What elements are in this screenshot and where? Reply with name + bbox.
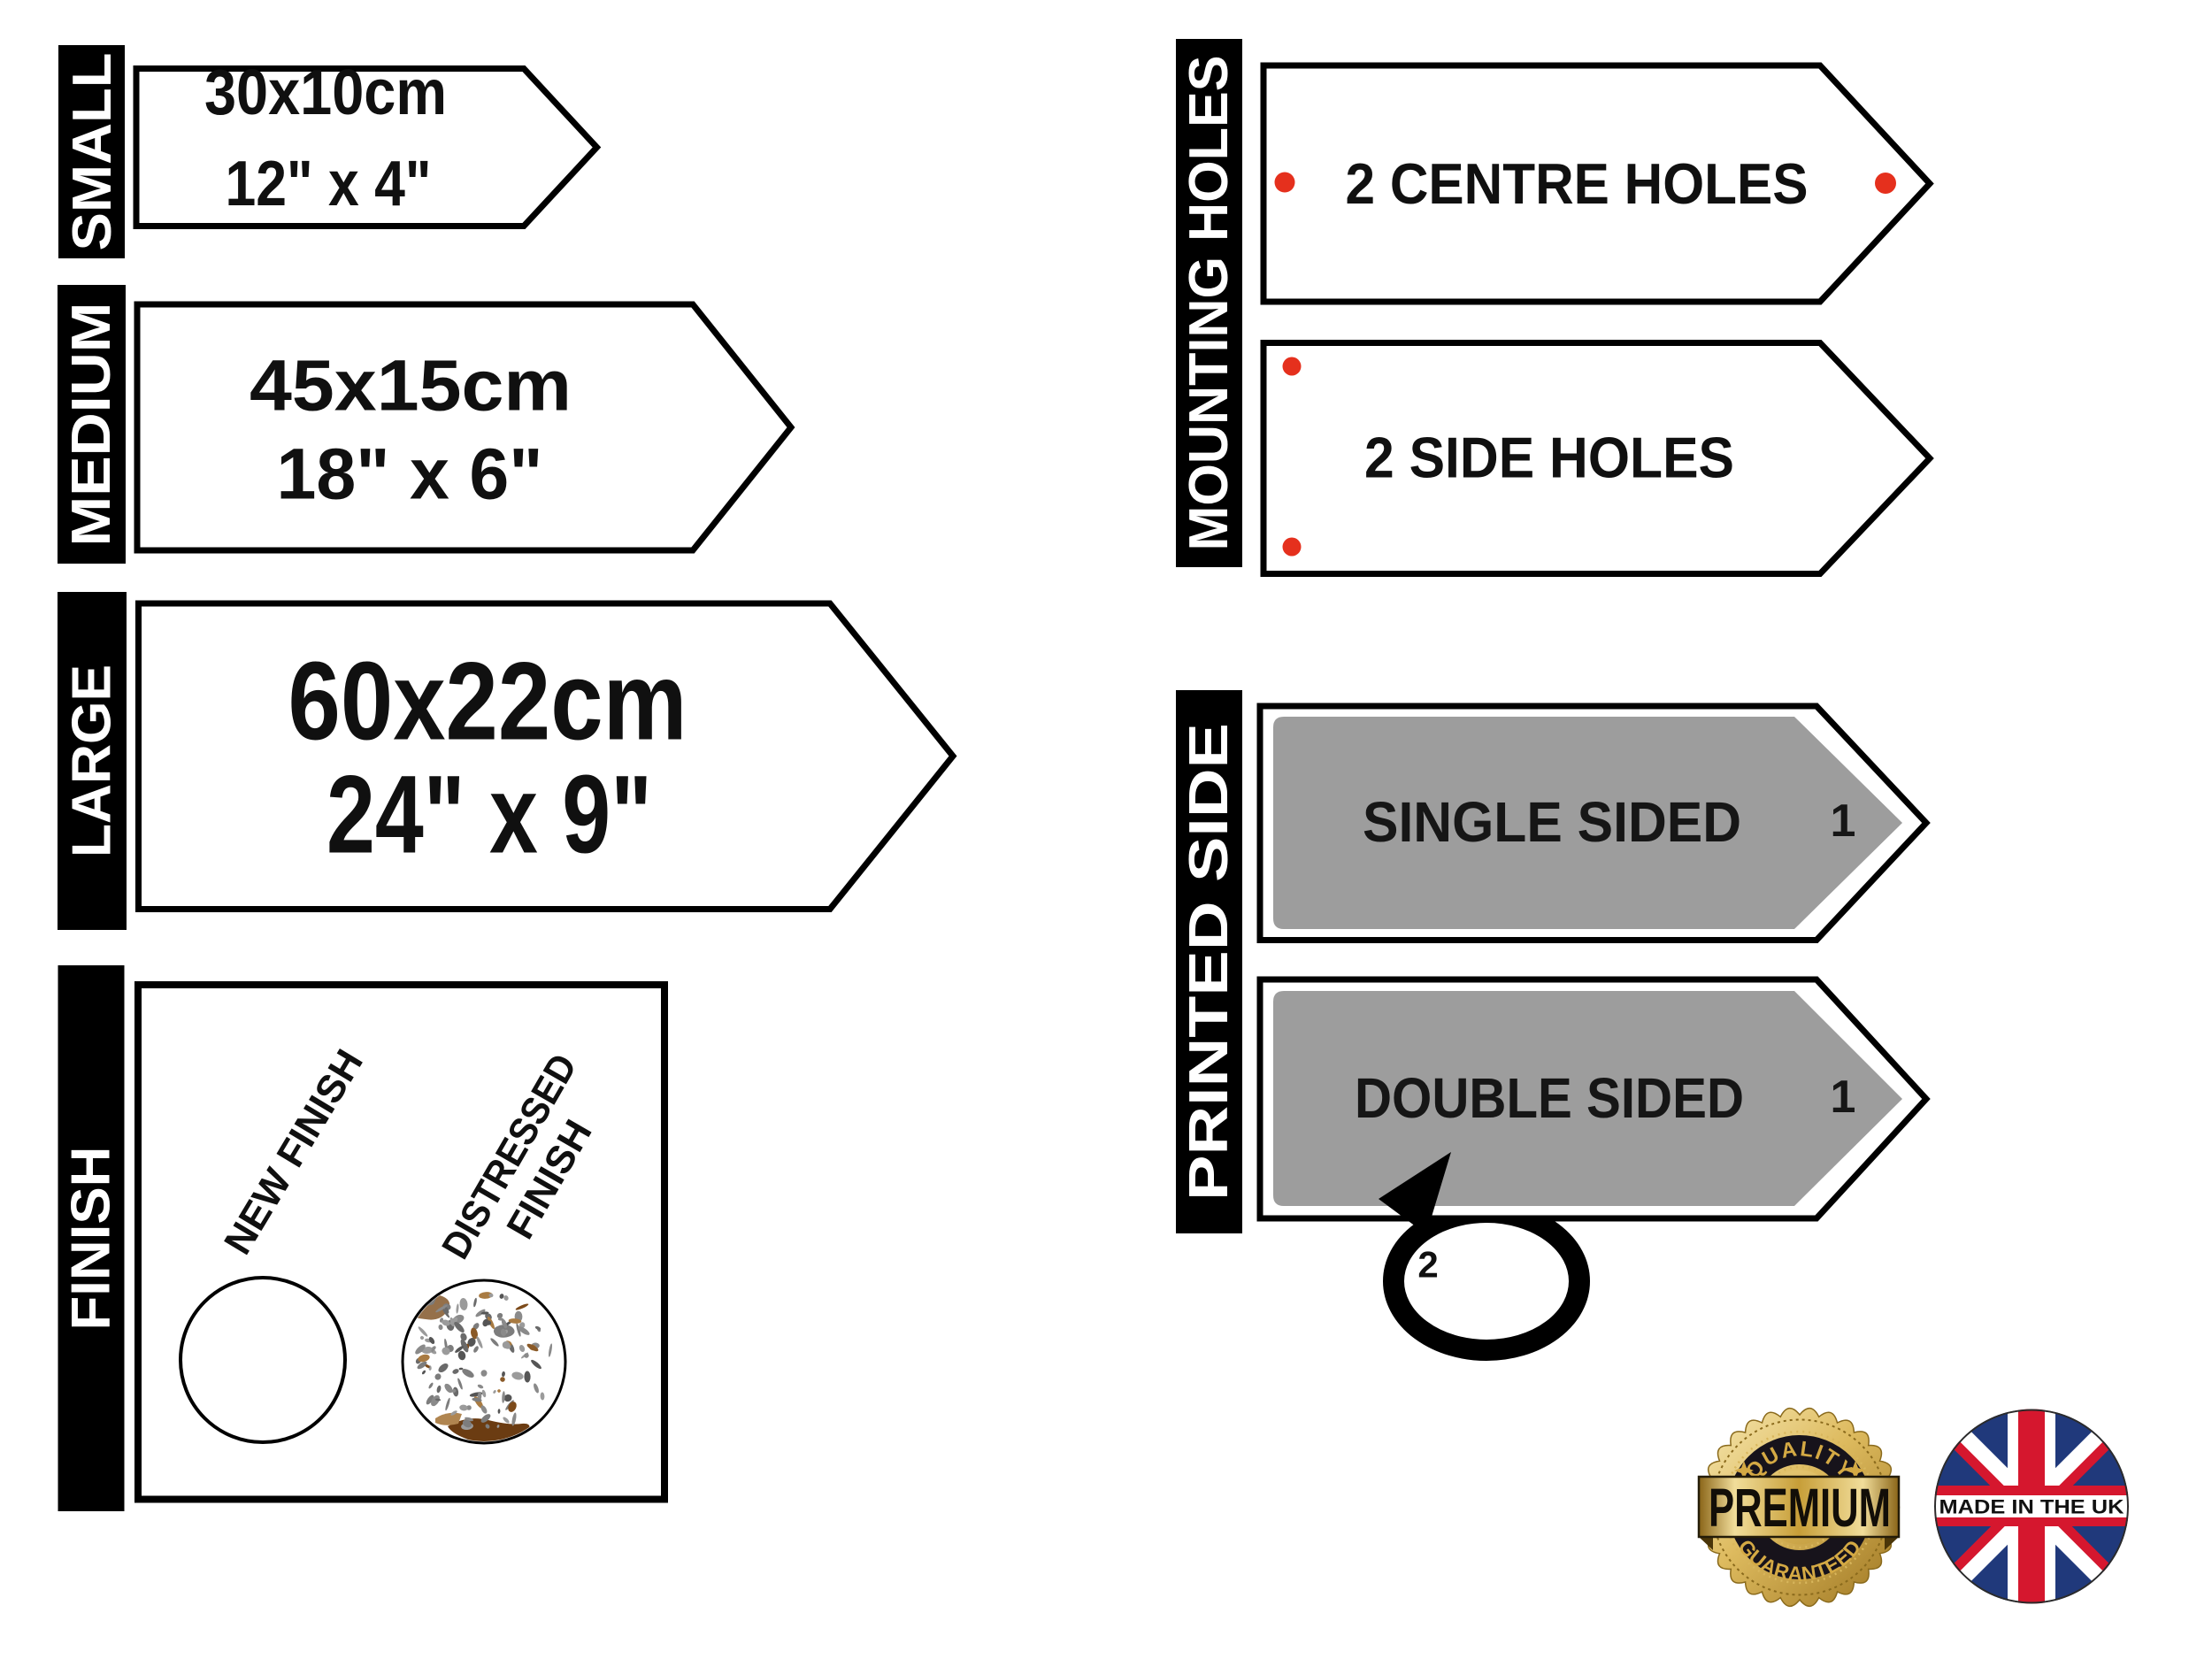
svg-text:18" x 6": 18" x 6" [277, 434, 543, 515]
svg-text:24" x 9": 24" x 9" [326, 754, 652, 877]
svg-text:FINISH: FINISH [61, 1147, 122, 1331]
svg-text:1: 1 [1831, 795, 1856, 847]
svg-text:LARGE: LARGE [62, 664, 123, 857]
svg-text:2 CENTRE HOLES: 2 CENTRE HOLES [1346, 151, 1809, 216]
svg-text:2 SIDE HOLES: 2 SIDE HOLES [1364, 426, 1734, 490]
svg-text:60x22cm: 60x22cm [288, 641, 687, 764]
svg-text:SMALL: SMALL [62, 53, 123, 251]
svg-text:SINGLE SIDED: SINGLE SIDED [1363, 790, 1741, 854]
svg-text:MADE IN THE UK: MADE IN THE UK [1939, 1496, 2124, 1518]
svg-text:12" x 4": 12" x 4" [226, 149, 432, 219]
svg-text:45x15cm: 45x15cm [250, 346, 572, 426]
svg-text:2: 2 [1417, 1244, 1438, 1286]
svg-text:MOUNTING HOLES: MOUNTING HOLES [1179, 56, 1240, 551]
svg-text:PREMIUM: PREMIUM [1709, 1478, 1891, 1538]
svg-text:1: 1 [1831, 1071, 1856, 1123]
svg-text:30x10cm: 30x10cm [204, 58, 447, 128]
svg-text:MEDIUM: MEDIUM [61, 303, 122, 547]
svg-text:PRINTED SIDE: PRINTED SIDE [1179, 723, 1240, 1201]
svg-text:DOUBLE SIDED: DOUBLE SIDED [1355, 1066, 1744, 1130]
